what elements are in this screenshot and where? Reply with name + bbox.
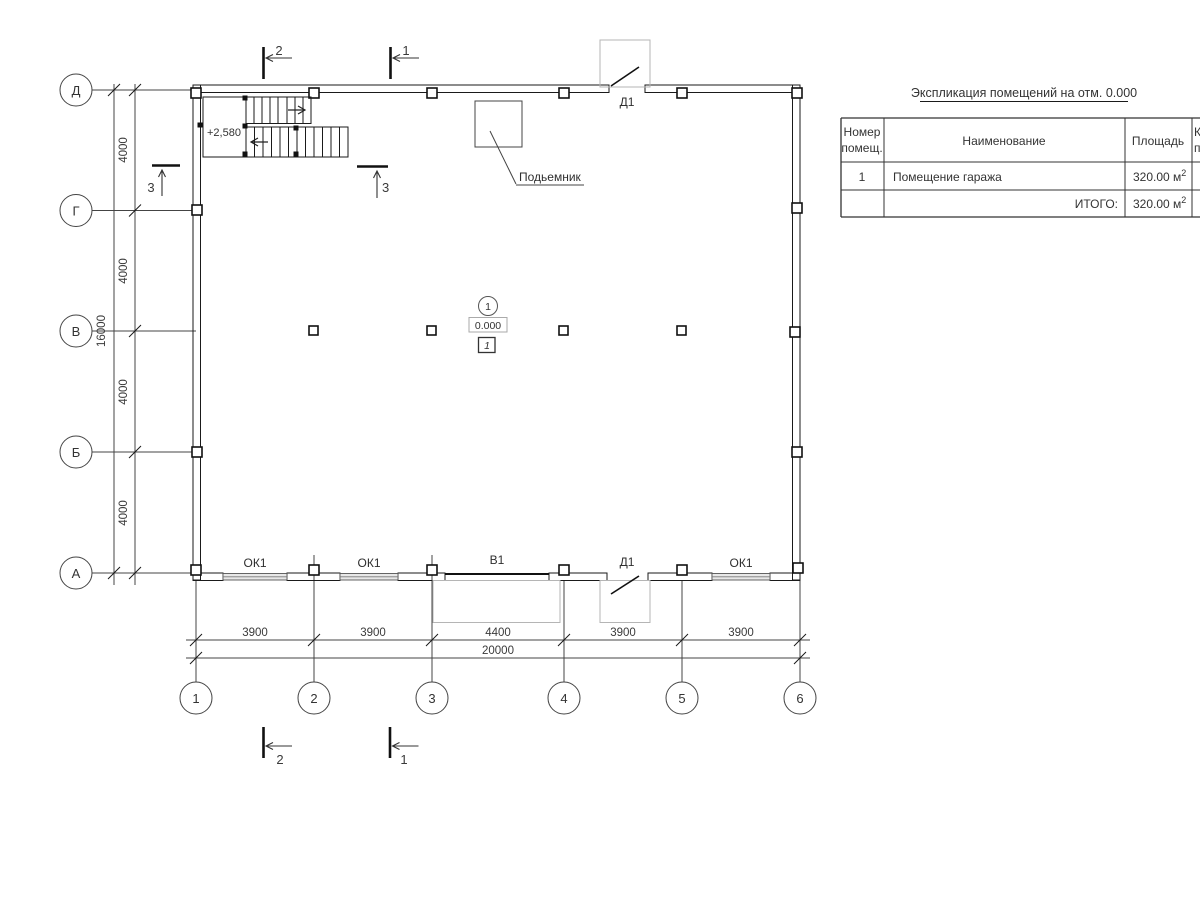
- stair-node-2: [243, 96, 248, 101]
- gate-label: В1: [490, 553, 505, 567]
- column-top-6: [792, 88, 802, 98]
- table-header-num-line1: Номер: [844, 125, 881, 139]
- axis-row-label-g: Г: [72, 204, 79, 219]
- axis-col-label-4: 4: [560, 691, 567, 706]
- column-bottom-6: [793, 563, 803, 573]
- column-inner-v2: [309, 326, 318, 335]
- table-total-area-sup: 2: [1181, 195, 1186, 205]
- column-top-4: [559, 88, 569, 98]
- hoist-label: Подьемник: [519, 170, 582, 184]
- dim-label-4000-4: 4000: [118, 500, 130, 526]
- axis-col-label-6: 6: [796, 691, 803, 706]
- axis-row-label-d: Д: [72, 83, 81, 98]
- column-right-v: [790, 327, 800, 337]
- section-3-right-label: 3: [382, 180, 389, 195]
- dim-label-16000: 16000: [96, 315, 108, 347]
- dim-label-4000-3: 4000: [118, 379, 130, 405]
- table-total-label: ИТОГО:: [1075, 197, 1118, 211]
- dim-label-3900-2: 3900: [360, 627, 386, 639]
- section-3-left-label: 3: [147, 180, 154, 195]
- column-right-b: [792, 447, 802, 457]
- column-bottom-5: [677, 565, 687, 575]
- axis-row-label-a: А: [72, 566, 81, 581]
- table-title: Экспликация помещений на отм. 0.000: [911, 86, 1137, 100]
- column-left-g: [192, 205, 202, 215]
- window-label-1: ОК1: [244, 556, 267, 570]
- section-1-top-label: 1: [402, 43, 409, 58]
- column-right-g: [792, 203, 802, 213]
- column-bottom-1: [191, 565, 201, 575]
- table-cell-area-value: 320.00 м: [1133, 170, 1181, 184]
- table-total-area-value: 320.00 м: [1133, 197, 1181, 211]
- dim-label-3900-3: 3900: [610, 627, 636, 639]
- stair-node-3: [243, 124, 248, 129]
- stair-node-6: [294, 152, 299, 157]
- column-top-5: [677, 88, 687, 98]
- dim-label-4000-1: 4000: [118, 137, 130, 163]
- column-left-b: [192, 447, 202, 457]
- table-cell-num: 1: [859, 170, 866, 184]
- window-label-3: ОК1: [730, 556, 753, 570]
- section-1-bottom-label: 1: [400, 752, 407, 767]
- floor-plan-drawing: 4000 4000 4000 4000 16000 3900 3900 4400…: [0, 0, 1200, 900]
- stair-node-5: [294, 126, 299, 131]
- column-bottom-3: [427, 565, 437, 575]
- window-label-2: ОК1: [358, 556, 381, 570]
- table-header-num-line2: помещ.: [841, 141, 882, 155]
- dim-label-4400: 4400: [485, 627, 511, 639]
- elevation-value: 0.000: [475, 320, 501, 332]
- table-header-name: Наименование: [962, 134, 1046, 148]
- axis-row-label-v: В: [72, 324, 81, 339]
- axis-col-label-5: 5: [678, 691, 685, 706]
- axis-row-label-b: Б: [72, 445, 81, 460]
- column-bottom-2: [309, 565, 319, 575]
- dim-label-3900-4: 3900: [728, 627, 754, 639]
- door-label-top: Д1: [620, 95, 635, 109]
- table-cell-area-sup: 2: [1181, 168, 1186, 178]
- table-header-cat-line2: п: [1194, 141, 1200, 155]
- table-header-area: Площадь: [1132, 134, 1184, 148]
- table-header-cat-line1: К: [1194, 125, 1200, 139]
- column-top-3: [427, 88, 437, 98]
- dim-label-20000: 20000: [482, 645, 514, 657]
- column-top-1: [191, 88, 201, 98]
- finish-type-value: 1: [484, 340, 490, 352]
- table-total-area: 320.00 м2: [1133, 195, 1186, 211]
- axis-col-label-2: 2: [310, 691, 317, 706]
- section-2-top-label: 2: [275, 43, 282, 58]
- column-inner-v4: [559, 326, 568, 335]
- axis-col-label-1: 1: [192, 691, 199, 706]
- dim-label-3900-1: 3900: [242, 627, 268, 639]
- column-inner-v5: [677, 326, 686, 335]
- stair-node-1: [198, 123, 203, 128]
- dim-label-4000-2: 4000: [118, 258, 130, 284]
- table-cell-name: Помещение гаража: [893, 170, 1002, 184]
- stair-node-4: [243, 152, 248, 157]
- stair-level-label: +2,580: [207, 127, 241, 139]
- axis-col-label-3: 3: [428, 691, 435, 706]
- section-2-bottom-label: 2: [276, 752, 283, 767]
- column-inner-v3: [427, 326, 436, 335]
- hoist-square: [475, 101, 522, 147]
- room-number: 1: [485, 301, 491, 313]
- table-cell-area: 320.00 м2: [1133, 168, 1186, 184]
- door-label-bottom: Д1: [620, 555, 635, 569]
- column-bottom-4: [559, 565, 569, 575]
